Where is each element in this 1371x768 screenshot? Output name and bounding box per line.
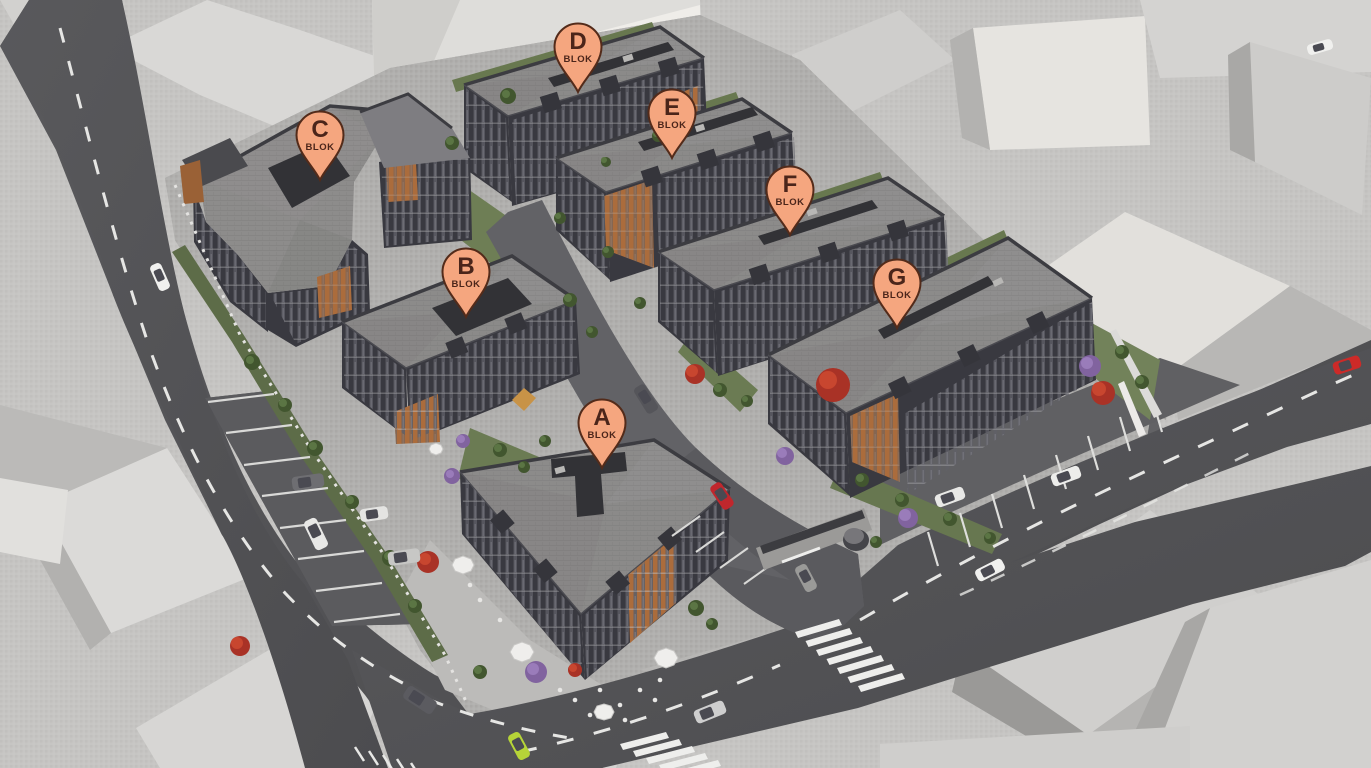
svg-text:A: A [593,404,610,431]
svg-text:C: C [311,116,328,143]
svg-text:BLOK: BLOK [564,54,593,65]
svg-text:BLOK: BLOK [658,120,687,131]
svg-text:D: D [569,28,586,55]
svg-text:BLOK: BLOK [776,197,805,208]
svg-text:G: G [888,264,907,291]
svg-text:E: E [664,94,680,121]
svg-text:BLOK: BLOK [452,279,481,290]
svg-text:BLOK: BLOK [588,430,617,441]
svg-text:BLOK: BLOK [883,290,912,301]
svg-text:BLOK: BLOK [306,142,335,153]
svg-text:B: B [457,253,474,280]
svg-text:F: F [783,171,798,198]
